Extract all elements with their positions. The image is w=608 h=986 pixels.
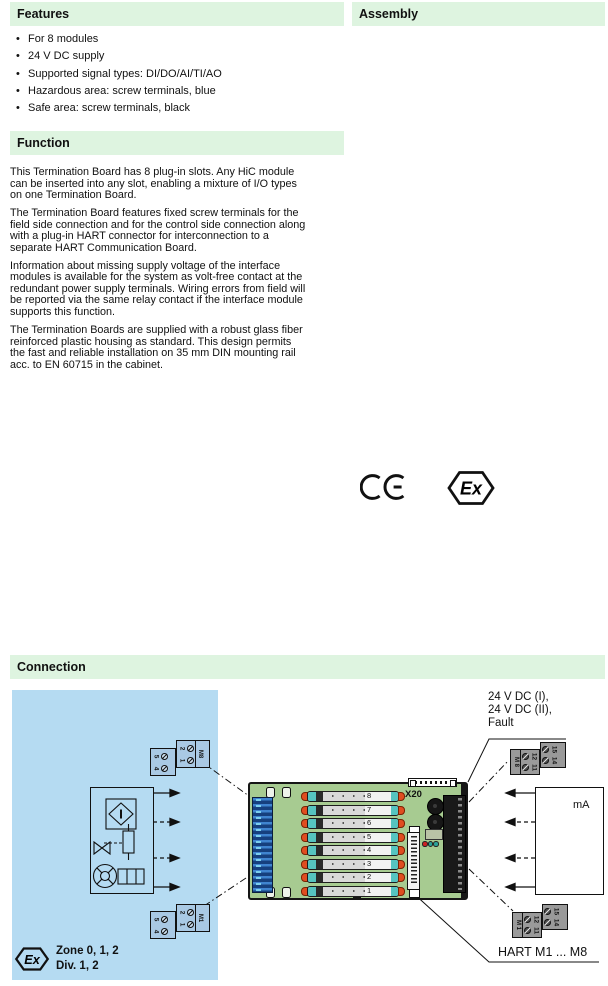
fuse-icon	[427, 798, 444, 815]
module-slot: 2	[301, 872, 405, 883]
slot-number: 4	[365, 846, 391, 855]
mounting-hole	[282, 787, 291, 798]
module-label: M 8	[513, 757, 519, 767]
function-paragraph: Information about missing supply voltage…	[10, 261, 360, 319]
mounting-hole	[282, 887, 291, 898]
screw-terminal-icon	[522, 753, 529, 760]
screw-terminal-icon	[524, 916, 531, 923]
screw-terminal-icon	[187, 909, 194, 916]
screw-terminal-icon	[161, 765, 168, 772]
screw-terminal-icon	[161, 916, 168, 923]
slot-clip-right	[398, 846, 405, 855]
slot-number: 6	[365, 819, 391, 828]
terminal-number: 11	[531, 764, 538, 772]
feature-item: Supported signal types: DI/DO/AI/TI/AO	[14, 66, 354, 83]
slot-clip-right	[398, 806, 405, 815]
screw-terminal-icon	[161, 753, 168, 760]
board-bottom-tab	[353, 897, 361, 900]
module-slot: 6	[301, 818, 405, 829]
field-terminal-block-power-m1: 5 4	[150, 911, 176, 939]
slot-body: 6	[307, 818, 399, 829]
control-m8-callout	[469, 760, 509, 802]
module-slot: 7	[301, 805, 405, 816]
led-green-icon	[433, 841, 439, 847]
function-paragraph: The Termination Boards are supplied with…	[10, 325, 360, 371]
screw-terminal-icon	[542, 757, 549, 764]
assembly-title: Assembly	[359, 7, 418, 21]
screw-terminal-icon	[522, 764, 529, 771]
module-label: M1	[198, 914, 204, 922]
slot-number: 3	[365, 860, 391, 869]
division-label: Div. 1, 2	[56, 959, 119, 974]
slot-body: 3	[307, 859, 399, 870]
terminal-number: 11	[533, 927, 540, 935]
screw-terminal-icon	[524, 927, 531, 934]
function-section-header: Function	[10, 131, 344, 155]
field-terminal-block-signal-m1: 2 1 M1	[176, 904, 210, 932]
control-wiring-arrows	[506, 790, 535, 891]
terminal-number: 12	[533, 916, 540, 924]
slot-clip-right	[398, 833, 405, 842]
slot-clip-right	[398, 819, 405, 828]
slot-clip-right	[398, 792, 405, 801]
slot-clip-right	[398, 887, 405, 896]
features-title: Features	[17, 7, 69, 21]
feature-item: For 8 modules	[14, 31, 354, 48]
screw-terminal-icon	[544, 908, 551, 915]
connection-section-header: Connection	[10, 655, 605, 679]
power-label: Fault	[488, 717, 552, 730]
ex-mark-small-text: Ex	[24, 952, 41, 967]
terminal-number: 4	[153, 927, 160, 935]
slot-body: 7	[307, 805, 399, 816]
module-slot: 1	[301, 886, 405, 897]
terminal-number: 14	[551, 757, 558, 765]
ex-mark-icon: Ex	[446, 469, 496, 507]
screw-terminal-icon	[187, 757, 194, 764]
power-supply-labels: 24 V DC (I), 24 V DC (II), Fault	[488, 691, 552, 731]
field-m1-callout	[204, 876, 249, 906]
field-screw-terminal-column-blue	[252, 797, 273, 893]
terminal-number: 1	[179, 756, 186, 764]
screw-terminal-icon	[544, 919, 551, 926]
relay-component	[425, 829, 443, 840]
module-slot: 4	[301, 845, 405, 856]
slot-clip-right	[398, 873, 405, 882]
field-wiring-arrows	[153, 790, 179, 891]
control-terminal-block-m1: M 1 12 11	[512, 912, 542, 938]
zone-label: Zone 0, 1, 2	[56, 944, 119, 959]
slot-number: 7	[365, 806, 391, 815]
ce-mark-icon	[360, 471, 406, 503]
features-section-header: Features	[10, 2, 344, 26]
module-slot: 8	[301, 791, 405, 802]
control-terminal-block-power-top: 15 14	[540, 742, 566, 768]
x20-connector-pins	[415, 781, 450, 784]
slot-number: 1	[365, 887, 391, 896]
feature-item: Hazardous area: screw terminals, blue	[14, 83, 354, 100]
slot-body: 2	[307, 872, 399, 883]
features-list: For 8 modules 24 V DC supply Supported s…	[14, 31, 354, 117]
x20-connector-strip	[408, 778, 457, 787]
function-title: Function	[17, 136, 70, 150]
terminal-number: 14	[553, 919, 560, 927]
terminal-number: 12	[531, 753, 538, 761]
terminal-number: 1	[179, 920, 186, 928]
slot-number: 8	[365, 792, 391, 801]
screw-terminal-icon	[542, 746, 549, 753]
hart-connector-pins	[411, 836, 417, 884]
screw-terminal-icon	[187, 921, 194, 928]
ex-mark-small-icon: Ex	[14, 946, 50, 972]
assembly-section-header: Assembly	[352, 2, 605, 26]
datasheet-page: { "colors": { "section_bar_bg": "#def4e0…	[0, 0, 608, 986]
feature-item: 24 V DC supply	[14, 48, 354, 65]
function-paragraph: This Termination Board has 8 plug-in slo…	[10, 167, 360, 202]
control-terminal-block-m8: M 8 12 11	[510, 749, 540, 775]
function-text: This Termination Board has 8 plug-in slo…	[10, 167, 360, 378]
field-terminal-block-power-m8: 5 4	[150, 748, 176, 776]
hart-connector	[407, 832, 420, 890]
module-label: M8	[198, 750, 204, 758]
slot-body: 5	[307, 832, 399, 843]
slot-number: 2	[365, 873, 391, 882]
zone-division-labels: Zone 0, 1, 2 Div. 1, 2	[56, 944, 119, 973]
control-signal-box	[535, 787, 604, 895]
screw-terminal-icon	[161, 928, 168, 935]
terminal-number: 15	[553, 908, 560, 916]
field-terminal-block-signal-m8: 2 1 M8	[176, 740, 210, 768]
terminal-number: 5	[153, 915, 160, 923]
slot-clip-right	[398, 860, 405, 869]
termination-board: X20 8 7 6 5 4 3 2 1	[248, 782, 468, 900]
slot-body: 1	[307, 886, 399, 897]
terminal-number: 4	[153, 764, 160, 772]
hart-connector-label: HART M1 ... M8	[498, 945, 587, 959]
terminal-number: 5	[153, 752, 160, 760]
slot-number: 5	[365, 833, 391, 842]
feature-item: Safe area: screw terminals, black	[14, 100, 354, 117]
power-label: 24 V DC (II),	[488, 704, 552, 717]
slot-body: 8	[307, 791, 399, 802]
terminal-number: 15	[551, 746, 558, 754]
control-m1-callout	[469, 869, 513, 911]
ex-mark-text: Ex	[460, 479, 483, 499]
hart-connector-tab	[409, 889, 420, 898]
milliamp-label: mA	[573, 799, 590, 811]
connection-title: Connection	[17, 660, 86, 674]
terminal-number: 2	[179, 908, 186, 916]
led-red-icon	[422, 841, 428, 847]
control-terminal-block-power-bottom: 15 14	[542, 904, 568, 930]
field-devices-box	[90, 787, 154, 894]
slot-body: 4	[307, 845, 399, 856]
connection-diagram: mA X20 8 7 6 5 4 3 2 1 5 4	[0, 690, 608, 986]
screw-terminal-icon	[187, 745, 194, 752]
function-paragraph: The Termination Board features fixed scr…	[10, 208, 360, 254]
module-slot: 5	[301, 832, 405, 843]
module-slot: 3	[301, 859, 405, 870]
control-screw-terminal-column-black	[443, 795, 466, 893]
module-label: M 1	[515, 920, 521, 930]
terminal-number: 2	[179, 744, 186, 752]
x20-label: X20	[405, 789, 422, 800]
power-label: 24 V DC (I),	[488, 691, 552, 704]
